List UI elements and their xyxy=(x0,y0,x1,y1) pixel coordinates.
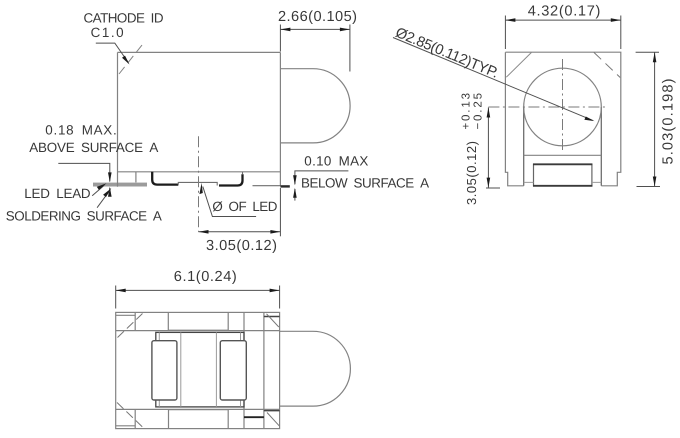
svg-text:5.03(0.198): 5.03(0.198) xyxy=(660,79,676,165)
svg-text:2.66(0.105): 2.66(0.105) xyxy=(278,9,357,25)
svg-text:0.18 MAX.: 0.18 MAX. xyxy=(45,123,116,138)
svg-text:−0.25: −0.25 xyxy=(472,93,484,130)
svg-text:6.1(0.24): 6.1(0.24) xyxy=(174,269,237,285)
svg-text:ABOVE SURFACE A: ABOVE SURFACE A xyxy=(29,140,158,155)
svg-text:SOLDERING SURFACE A: SOLDERING SURFACE A xyxy=(6,208,162,223)
svg-text:Ø OF LED: Ø OF LED xyxy=(212,199,277,214)
svg-text:BELOW SURFACE A: BELOW SURFACE A xyxy=(301,175,429,190)
svg-text:3.05(0.12): 3.05(0.12) xyxy=(464,141,479,205)
svg-text:0.10 MAX: 0.10 MAX xyxy=(304,153,368,168)
svg-text:C1.0: C1.0 xyxy=(91,25,124,40)
svg-text:4.32(0.17): 4.32(0.17) xyxy=(528,3,601,19)
svg-text:+0.13: +0.13 xyxy=(460,93,472,130)
svg-text:CATHODE ID: CATHODE ID xyxy=(84,11,164,26)
svg-text:3.05(0.12): 3.05(0.12) xyxy=(206,238,277,254)
svg-text:LED LEAD: LED LEAD xyxy=(24,186,91,201)
